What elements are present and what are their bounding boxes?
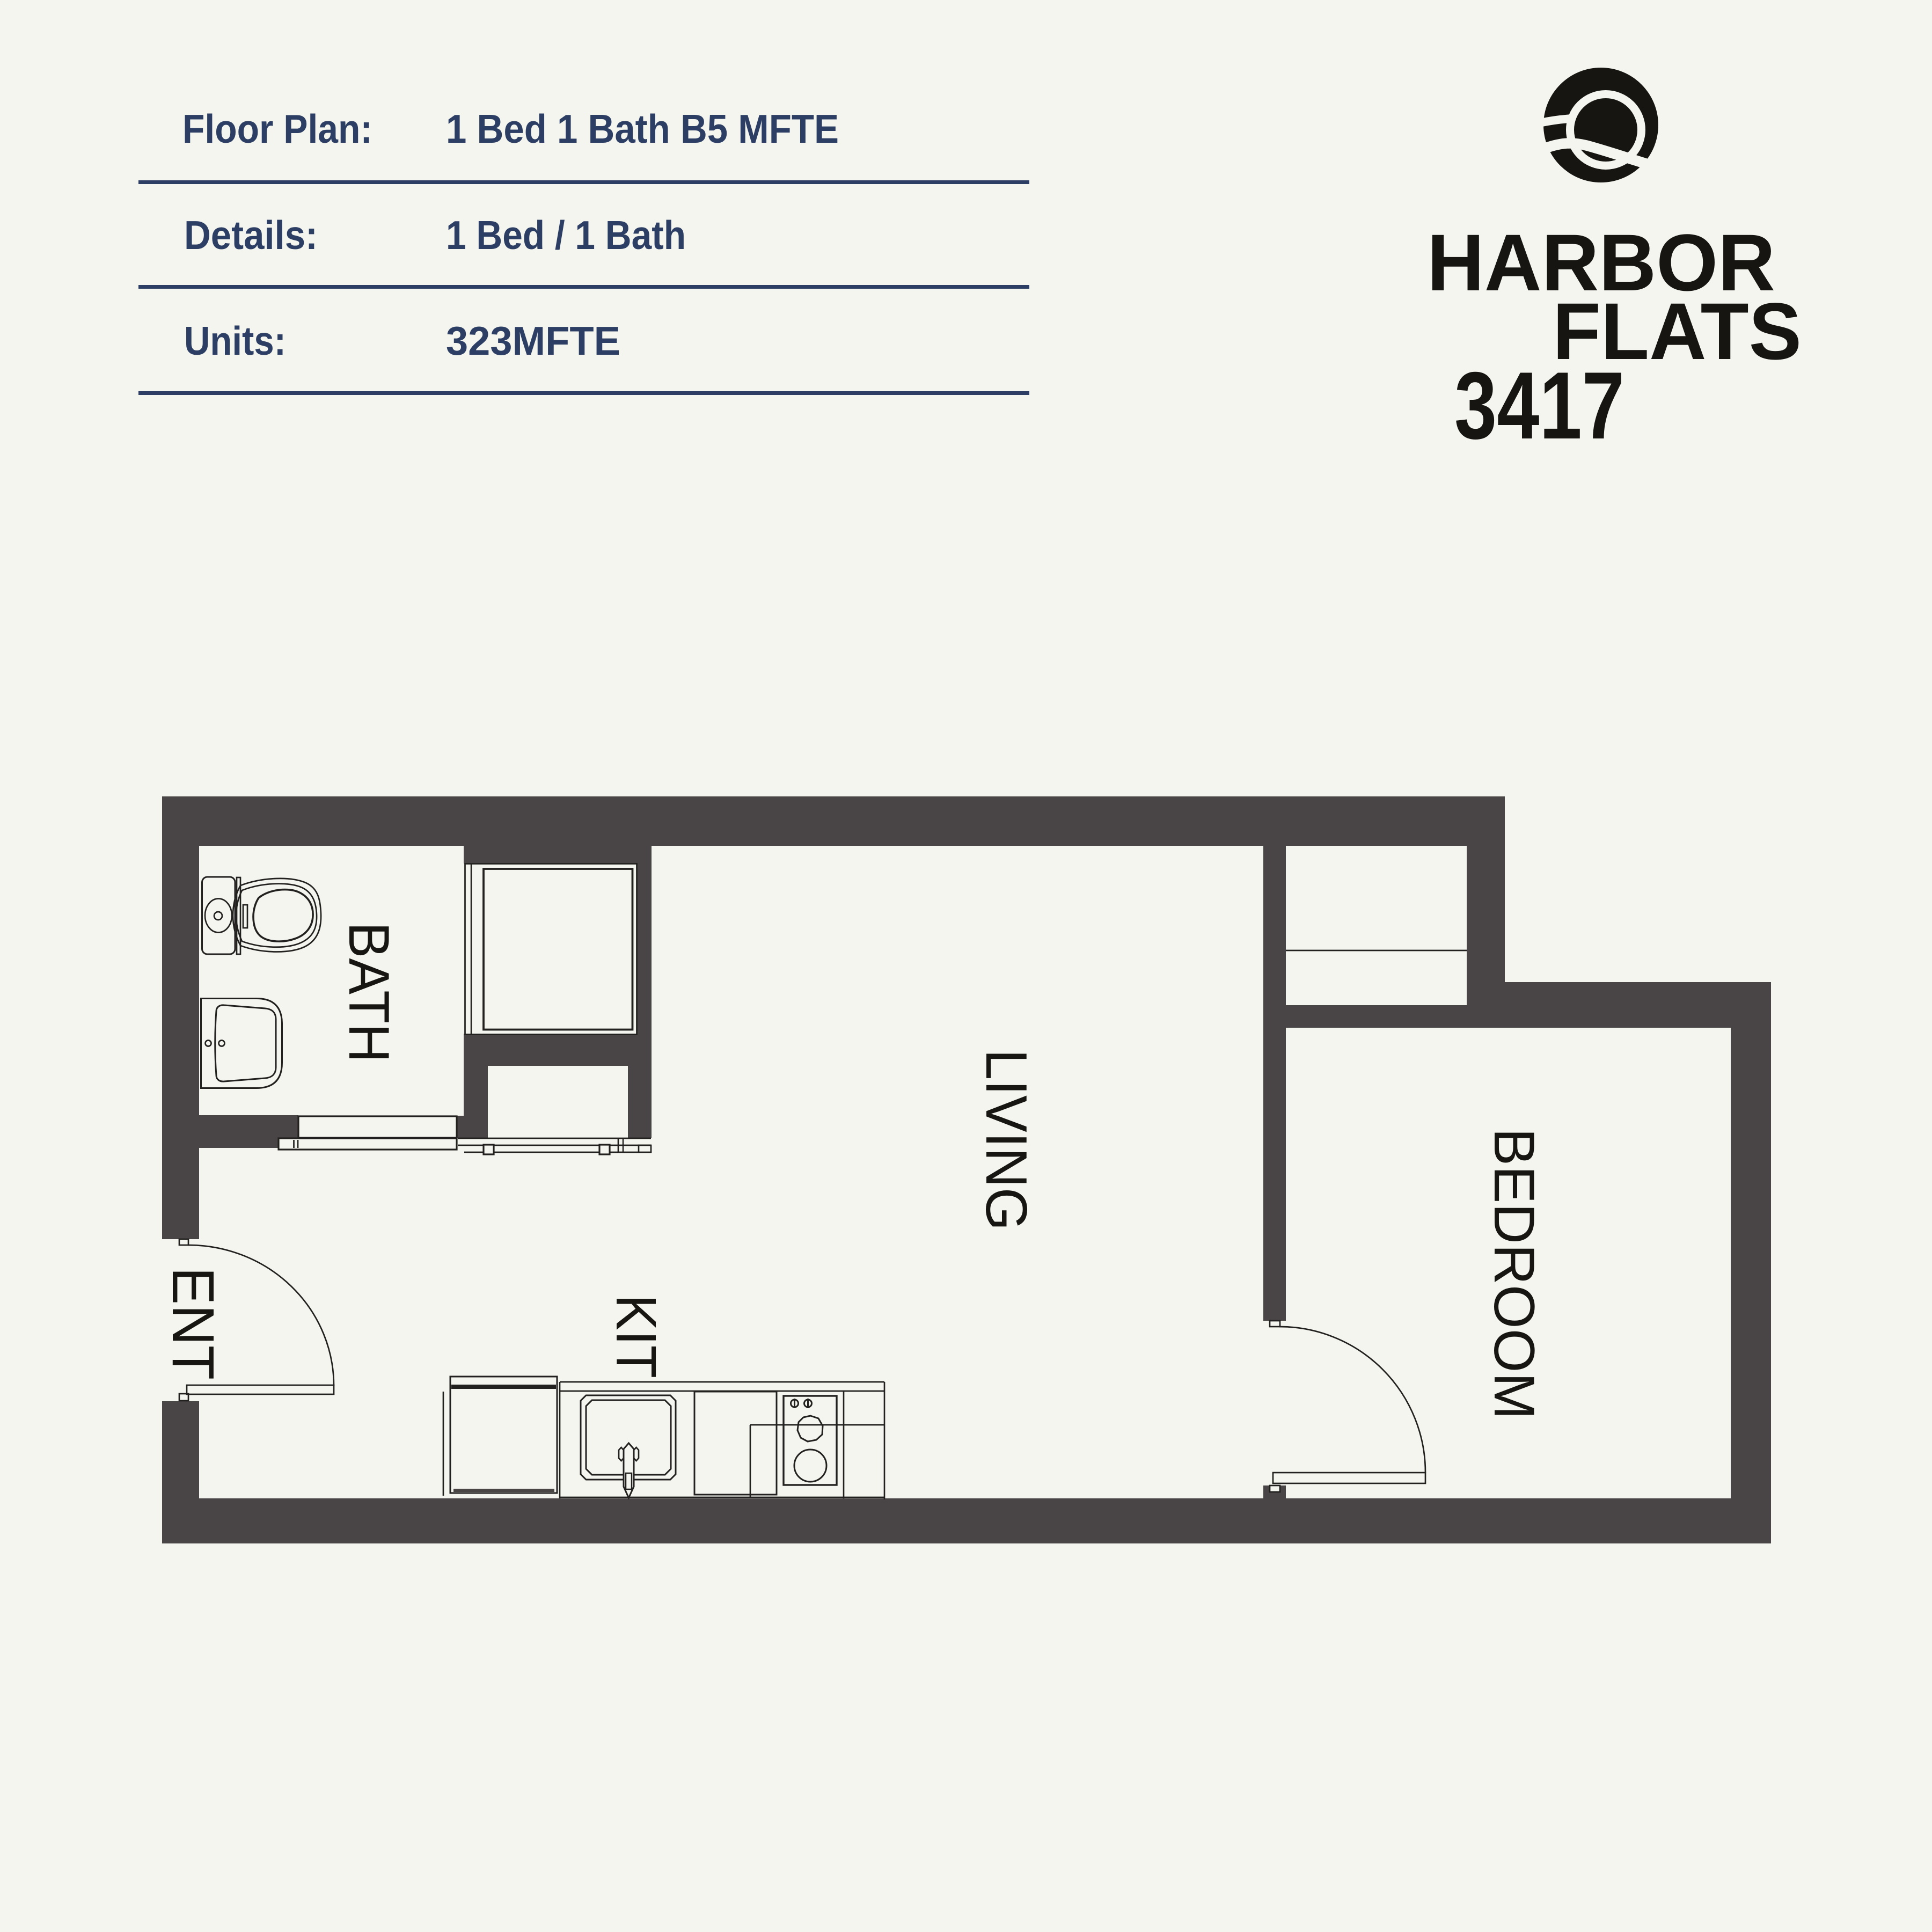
svg-text:ENT: ENT	[160, 1267, 226, 1380]
svg-text:BATH: BATH	[337, 922, 401, 1063]
svg-text:3417: 3417	[1454, 352, 1624, 459]
svg-text:Units:: Units:	[184, 318, 286, 363]
svg-text:323MFTE: 323MFTE	[446, 318, 620, 363]
svg-text:1 Bed 1 Bath B5 MFTE: 1 Bed 1 Bath B5 MFTE	[446, 106, 839, 151]
svg-text:BEDROOM: BEDROOM	[1482, 1128, 1547, 1419]
svg-text:Details:: Details:	[184, 213, 318, 258]
svg-text:LIVING: LIVING	[974, 1049, 1039, 1231]
svg-text:Floor Plan:: Floor Plan:	[182, 106, 372, 151]
svg-text:1 Bed / 1 Bath: 1 Bed / 1 Bath	[446, 213, 686, 258]
svg-text:KIT: KIT	[604, 1294, 668, 1378]
